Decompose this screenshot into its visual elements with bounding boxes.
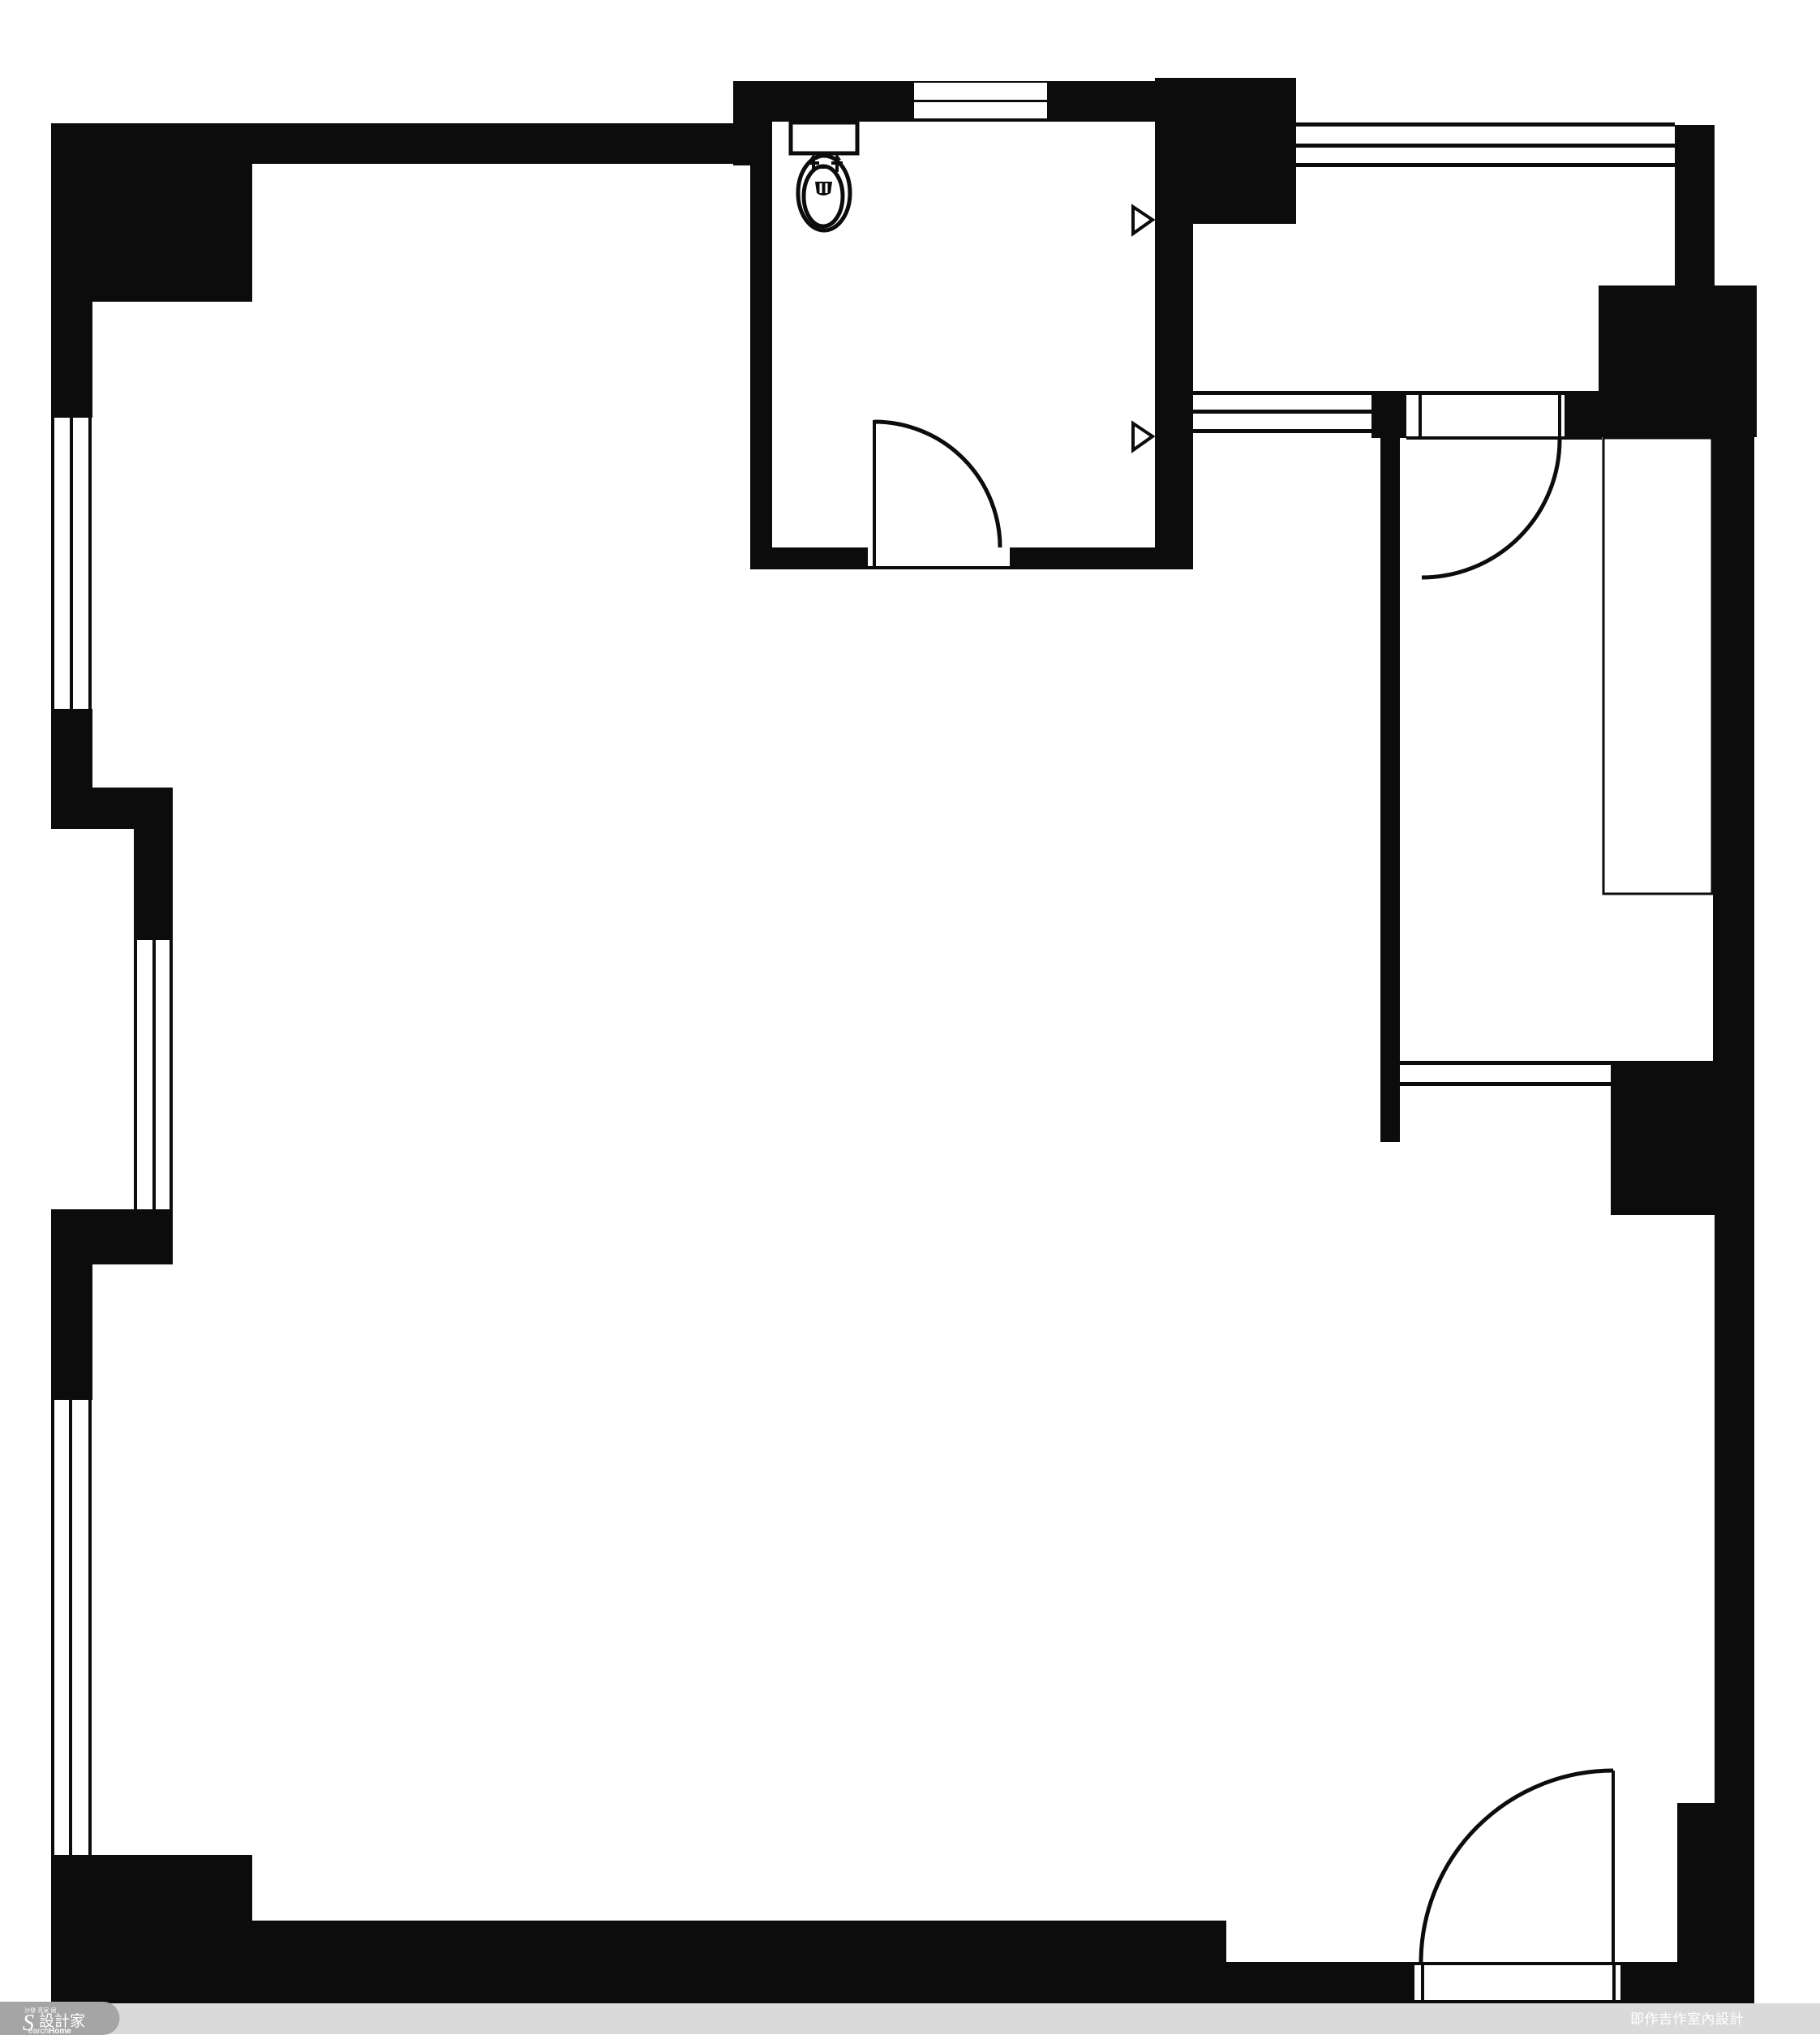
svg-text:即作吉作室內設計: 即作吉作室內設計	[1630, 2011, 1744, 2027]
svg-text:earchHome: earchHome	[28, 2027, 71, 2036]
